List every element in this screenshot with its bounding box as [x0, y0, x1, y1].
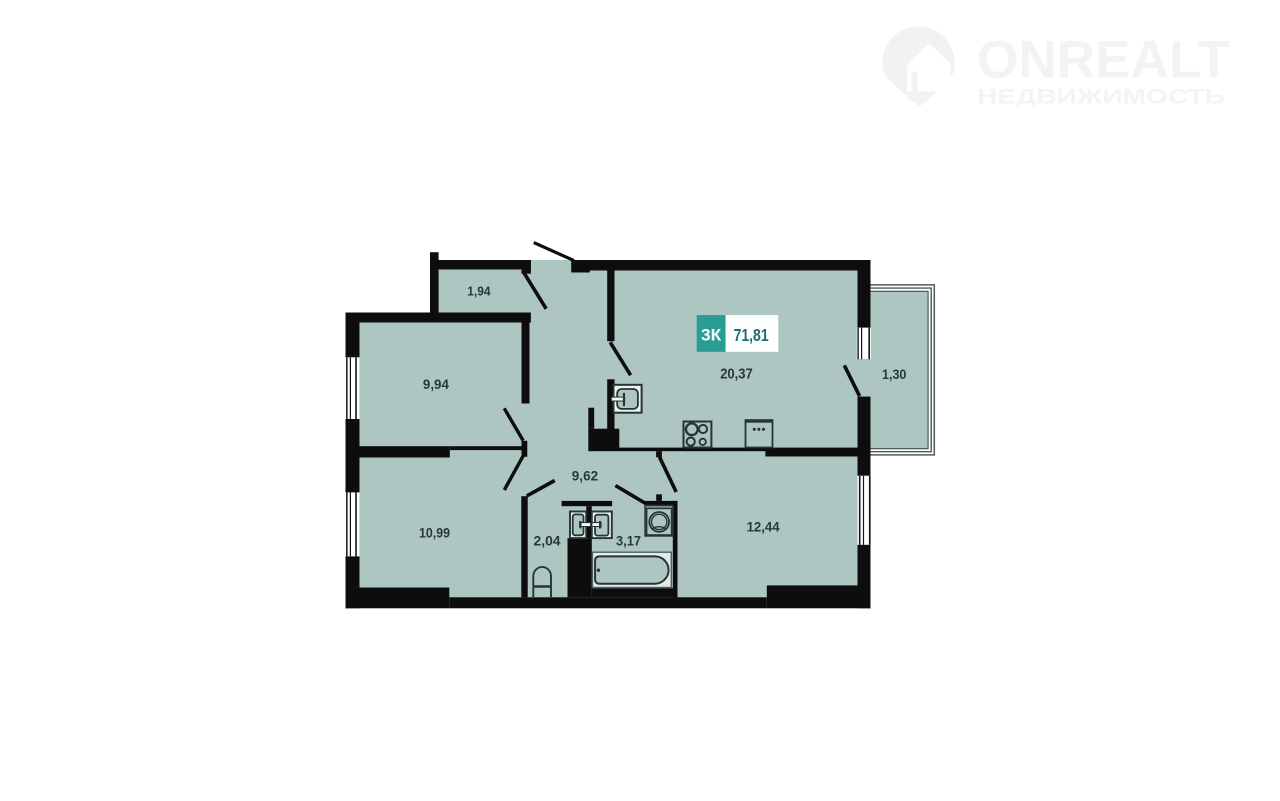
svg-text:71,81: 71,81: [734, 325, 769, 345]
svg-text:1,94: 1,94: [467, 284, 491, 299]
svg-text:9,94: 9,94: [423, 377, 449, 392]
svg-text:ONREALT: ONREALT: [977, 31, 1230, 90]
svg-text:3,17: 3,17: [616, 533, 641, 548]
svg-text:9,62: 9,62: [572, 468, 598, 483]
svg-text:3К: 3К: [701, 326, 722, 345]
svg-text:1,30: 1,30: [882, 367, 906, 382]
svg-text:2,04: 2,04: [534, 534, 561, 549]
svg-text:НЕДВИЖИМОСТЬ: НЕДВИЖИМОСТЬ: [977, 86, 1225, 109]
svg-text:12,44: 12,44: [747, 519, 780, 534]
svg-text:20,37: 20,37: [720, 365, 753, 382]
svg-text:10,99: 10,99: [419, 525, 450, 540]
